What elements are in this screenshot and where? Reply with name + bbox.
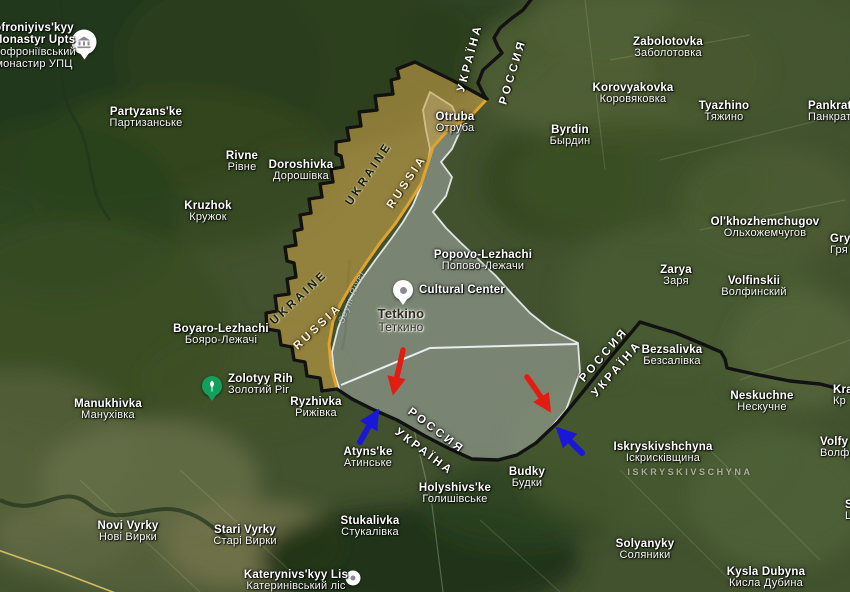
monastery-pin[interactable] [72,30,97,55]
monastery-icon [72,30,97,55]
place-dot-icon [346,571,361,586]
cultural-center-pin[interactable] [393,280,413,300]
katerynivskyy-lis-pin[interactable] [346,571,361,586]
counter-arrow-1 [360,414,376,442]
map-graphics-layer [0,0,850,592]
zolotyy-rih-pin[interactable] [202,376,222,396]
park-tree-icon [202,376,222,396]
satellite-map-viewport[interactable]: ofroniyivs'kyyMonastyr UptsСофроніївськи… [0,0,850,592]
cultural-center-icon [393,280,413,300]
